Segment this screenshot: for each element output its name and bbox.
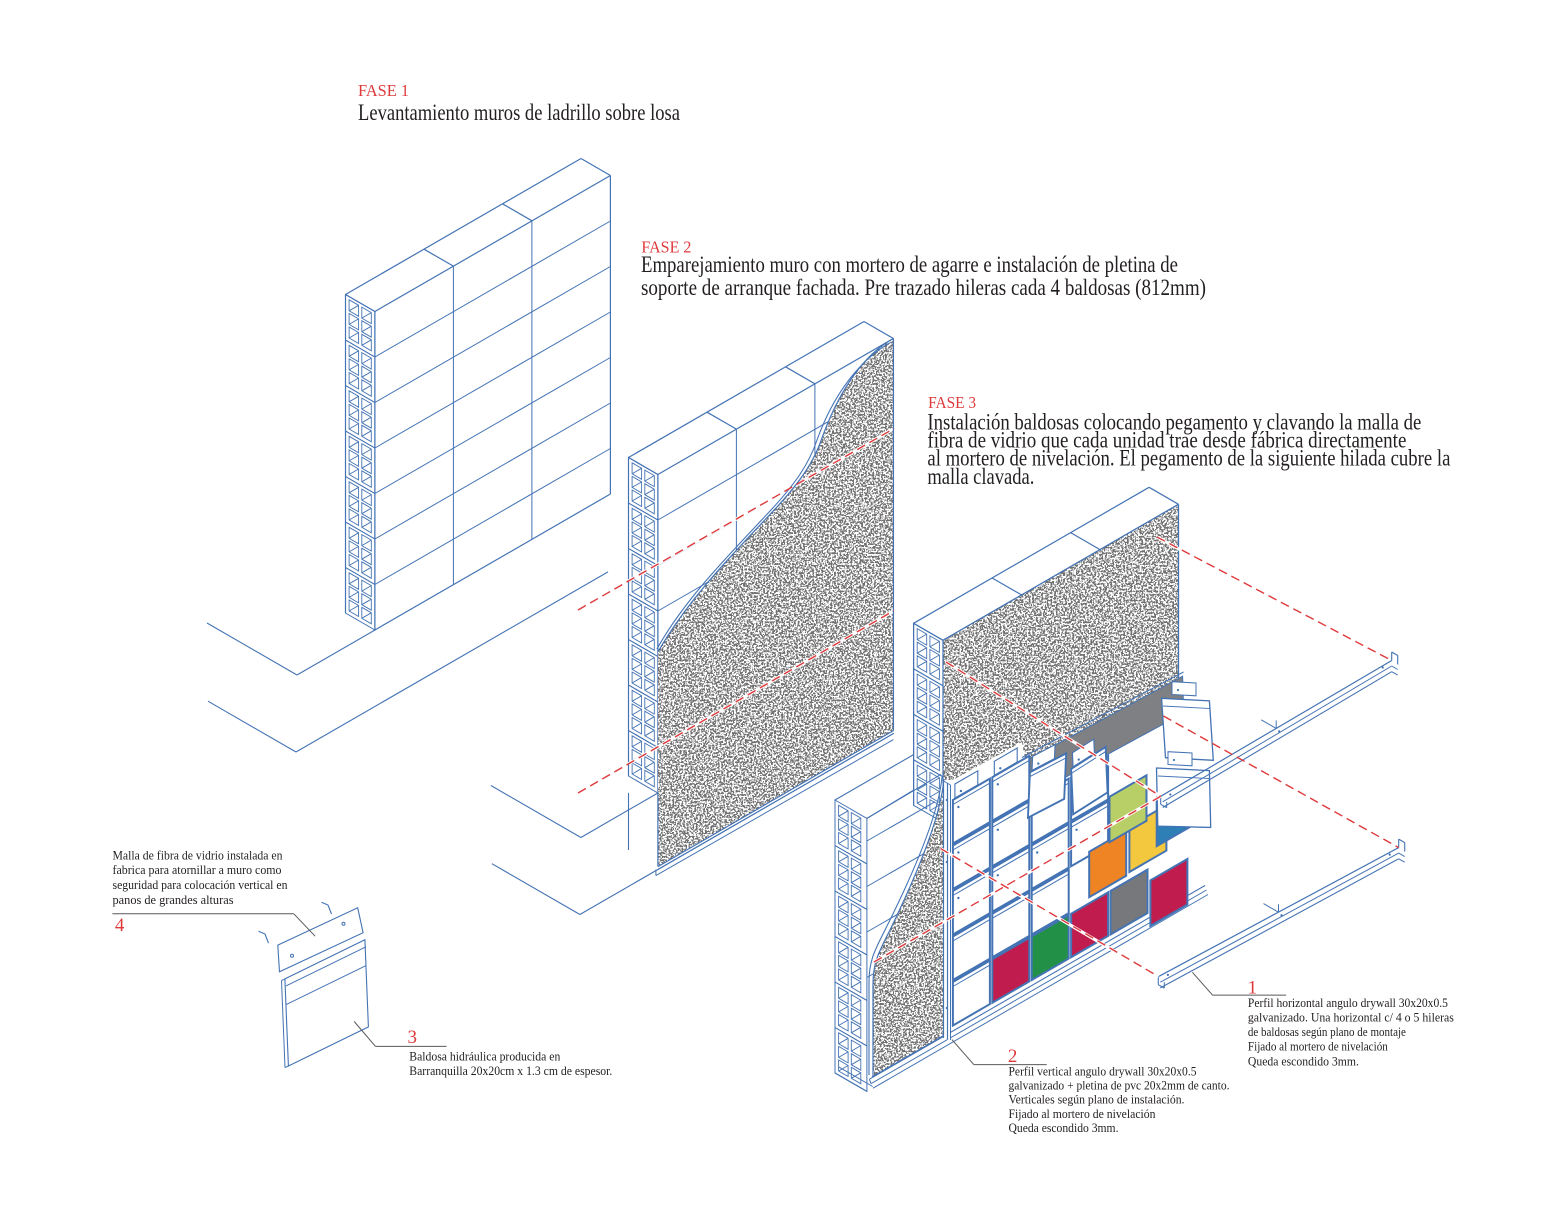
svg-text:Baldosa hidráulica producida e: Baldosa hidráulica producida en <box>409 1050 561 1064</box>
svg-text:Emparejamiento muro con morter: Emparejamiento muro con mortero de agarr… <box>641 252 1178 277</box>
svg-text:fabrica para atornillar a muro: fabrica para atornillar a muro como <box>113 863 282 877</box>
svg-text:malla clavada.: malla clavada. <box>927 464 1034 489</box>
svg-text:galvanizado + pletina de pvc 2: galvanizado + pletina de pvc 20x2mm de c… <box>1009 1079 1230 1093</box>
svg-text:Queda escondido 3mm.: Queda escondido 3mm. <box>1009 1121 1119 1135</box>
svg-text:Perfil vertical angulo drywall: Perfil vertical angulo drywall 30x20x0.5 <box>1009 1064 1197 1078</box>
svg-text:4: 4 <box>115 915 125 936</box>
svg-text:de baldosas según plano de mon: de baldosas según plano de montaje <box>1248 1025 1406 1039</box>
svg-text:seguridad para colocación vert: seguridad para colocación vertical en <box>113 878 289 892</box>
svg-text:Queda escondido 3mm.: Queda escondido 3mm. <box>1248 1054 1359 1068</box>
svg-text:Levantamiento muros de ladrill: Levantamiento muros de ladrillo sobre lo… <box>358 100 680 125</box>
svg-text:panos de grandes alturas: panos de grandes alturas <box>113 893 234 907</box>
svg-text:galvanizado. Una horizontal c/: galvanizado. Una horizontal c/ 4 o 5 hil… <box>1248 1011 1454 1025</box>
svg-text:Barranquilla 20x20cm x 1.3 cm: Barranquilla 20x20cm x 1.3 cm de espesor… <box>409 1064 612 1078</box>
svg-text:Malla de fibra de vidrio insta: Malla de fibra de vidrio instalada en <box>113 848 284 862</box>
svg-text:soporte de arranque fachada. P: soporte de arranque fachada. Pre trazado… <box>641 275 1206 300</box>
svg-text:3: 3 <box>408 1027 418 1048</box>
svg-text:Verticales según plano de inst: Verticales según plano de instalación. <box>1009 1093 1185 1107</box>
svg-text:Fijado al mortero de nivelació: Fijado al mortero de nivelación <box>1009 1107 1157 1121</box>
svg-text:FASE 1: FASE 1 <box>358 81 409 100</box>
svg-text:Fijado al mortero de nivelació: Fijado al mortero de nivelación <box>1248 1040 1389 1054</box>
svg-text:Perfil horizontal angulo drywa: Perfil horizontal angulo drywall 30x20x0… <box>1248 996 1448 1010</box>
